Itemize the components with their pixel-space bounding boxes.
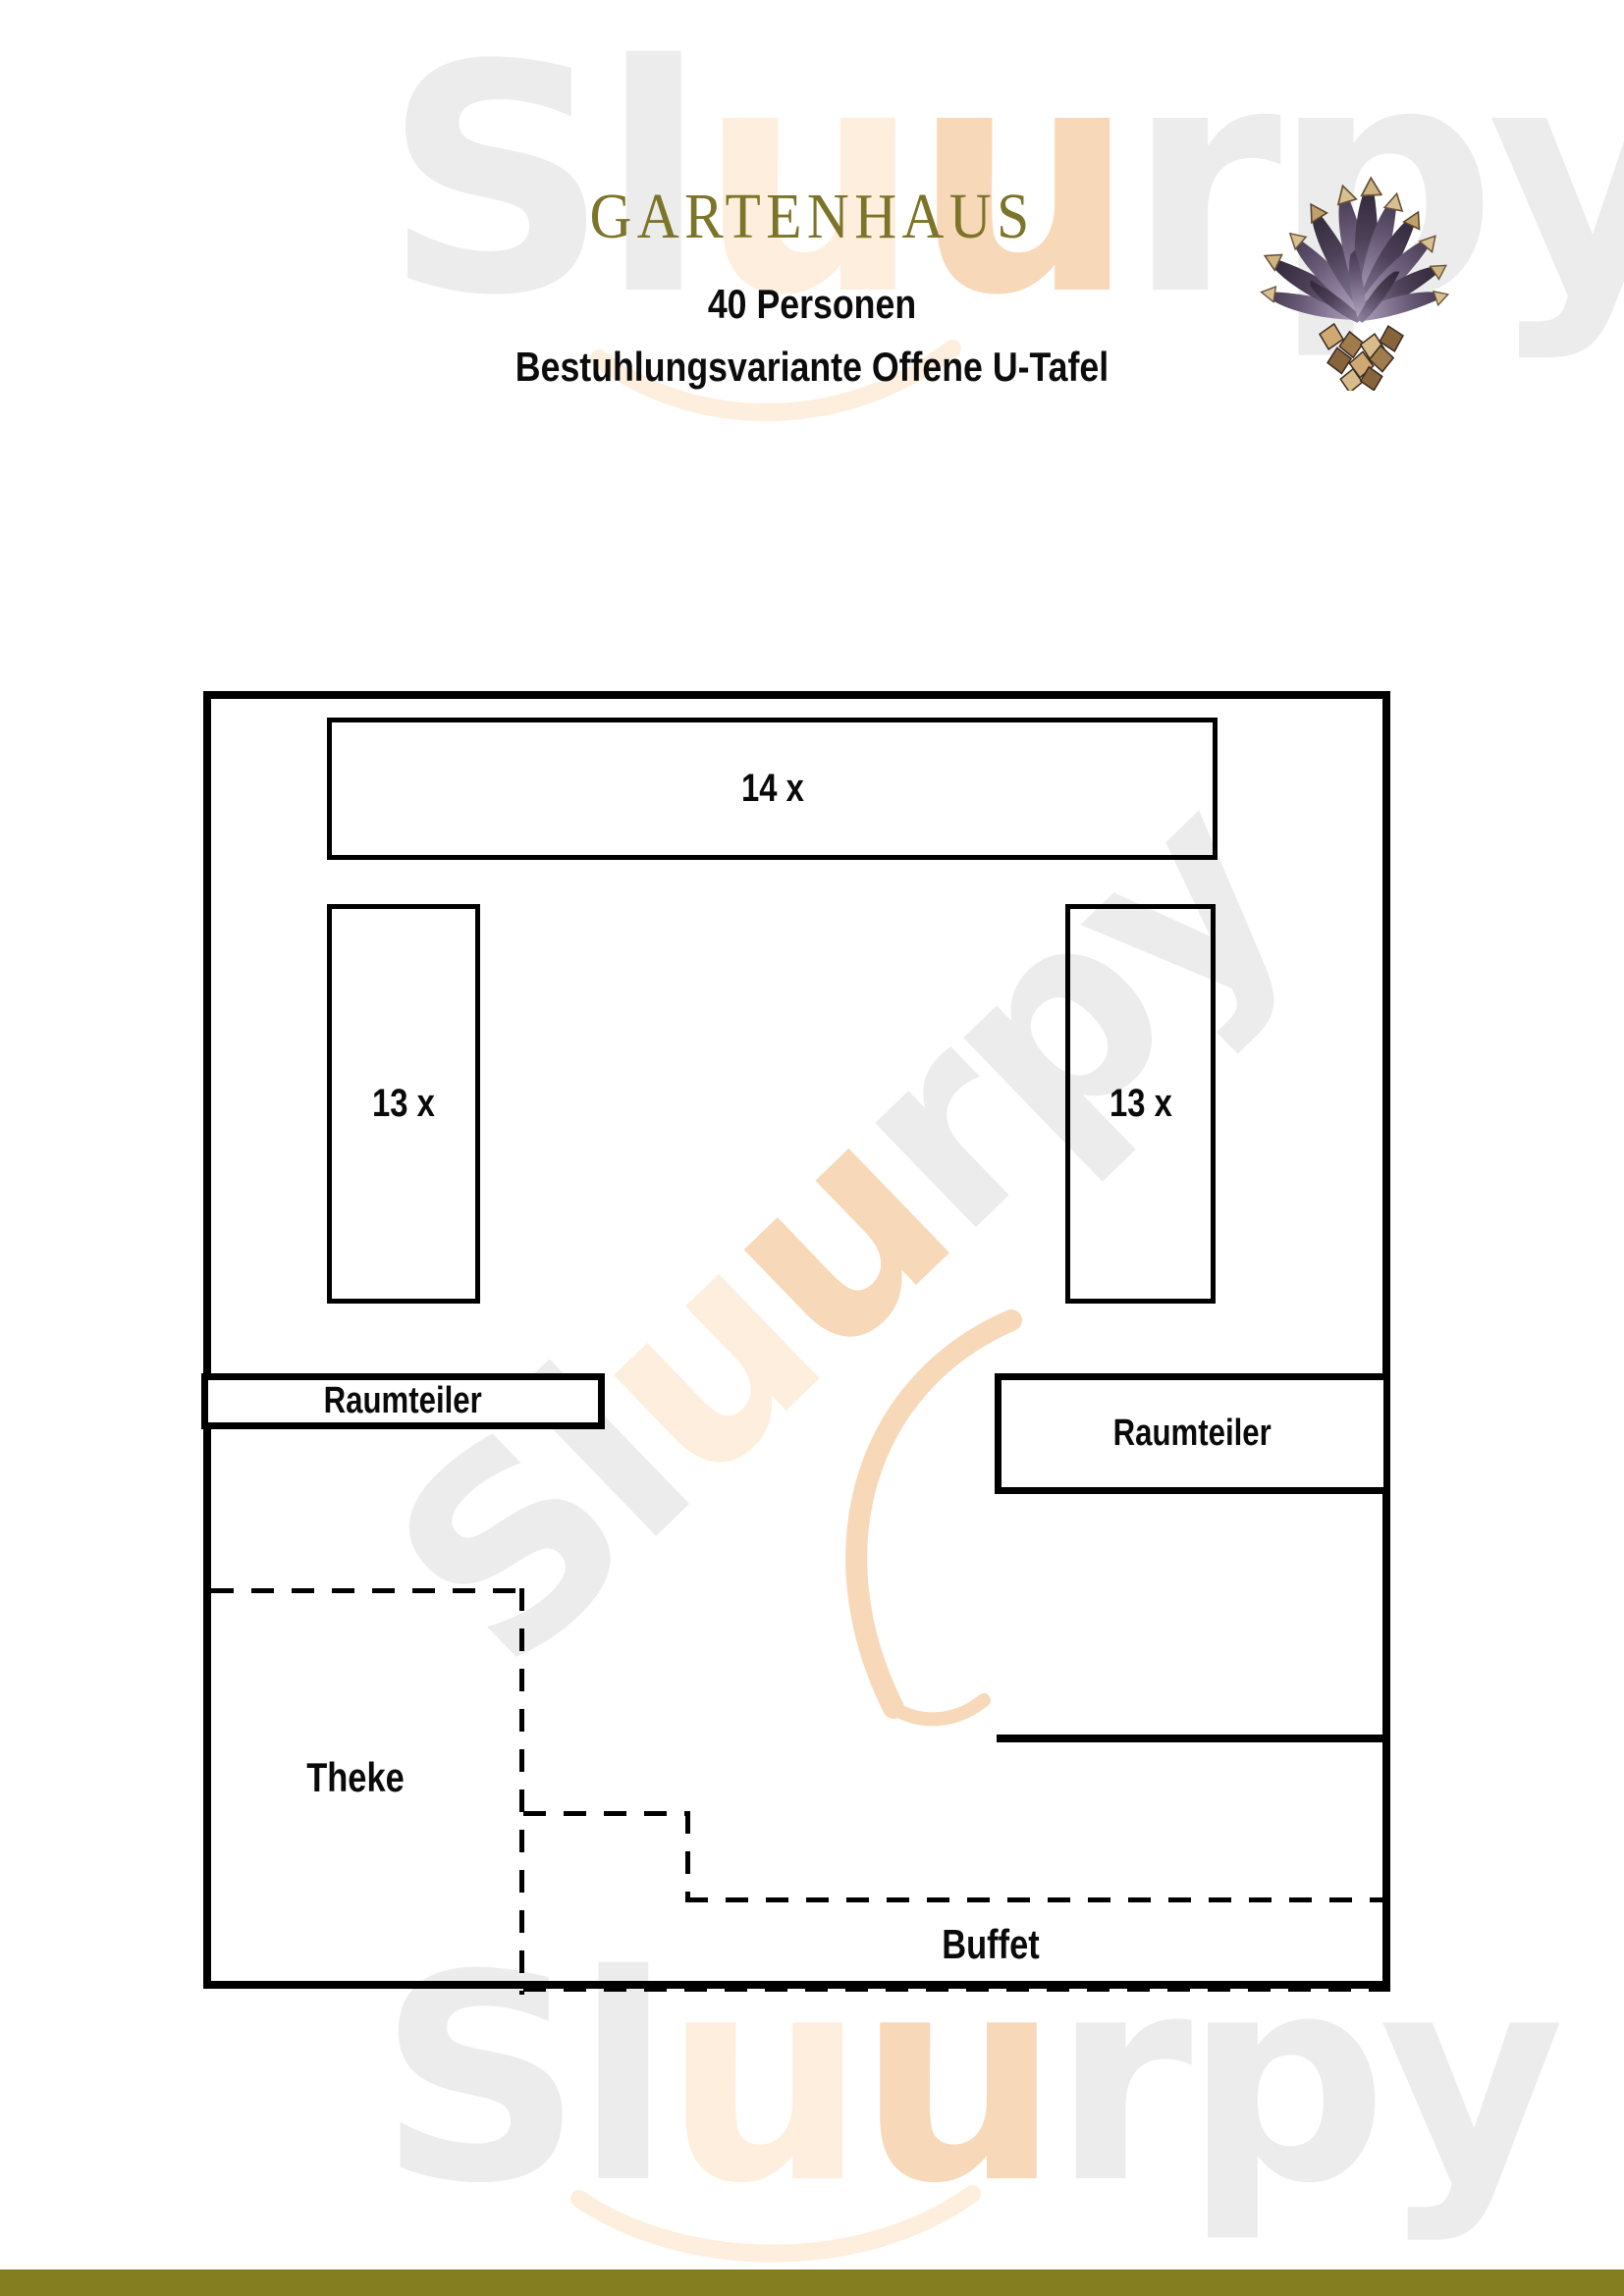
divider-label: Raumteiler [1113,1413,1272,1455]
buffet-dashed-line [685,1811,690,1902]
room-divider-left: Raumteiler [201,1373,605,1429]
buffet-dashed-line [523,1987,1390,1992]
pinecone-upper-scales [1259,177,1450,327]
buffet-label: Buffet [942,1921,1039,1968]
buffet-dashed-line [685,1897,1390,1902]
document-page: Sluurpy Sluurpy Sluurpy GARTENHAUS 40 Pe… [0,0,1624,2296]
footer-accent-bar [0,2269,1624,2296]
counter-dashed-line [211,1588,523,1593]
divider-label: Raumteiler [324,1380,482,1422]
watermark-swoosh-icon [569,2184,982,2282]
pinecone-illustration [1239,131,1480,391]
table-left: 13 x [327,904,480,1304]
room-divider-right: Raumteiler [995,1373,1390,1494]
table-head: 14 x [327,718,1218,860]
interior-wall [997,1735,1382,1742]
buffet-dashed-line [523,1811,690,1816]
pinecone-base-scales [1317,321,1406,391]
counter-label: Theke [306,1754,405,1801]
table-seat-count: 14 x [741,767,804,811]
table-seat-count: 13 x [1110,1082,1172,1126]
table-right: 13 x [1065,904,1216,1304]
counter-dashed-line [519,1588,524,1995]
table-seat-count: 13 x [372,1082,435,1126]
